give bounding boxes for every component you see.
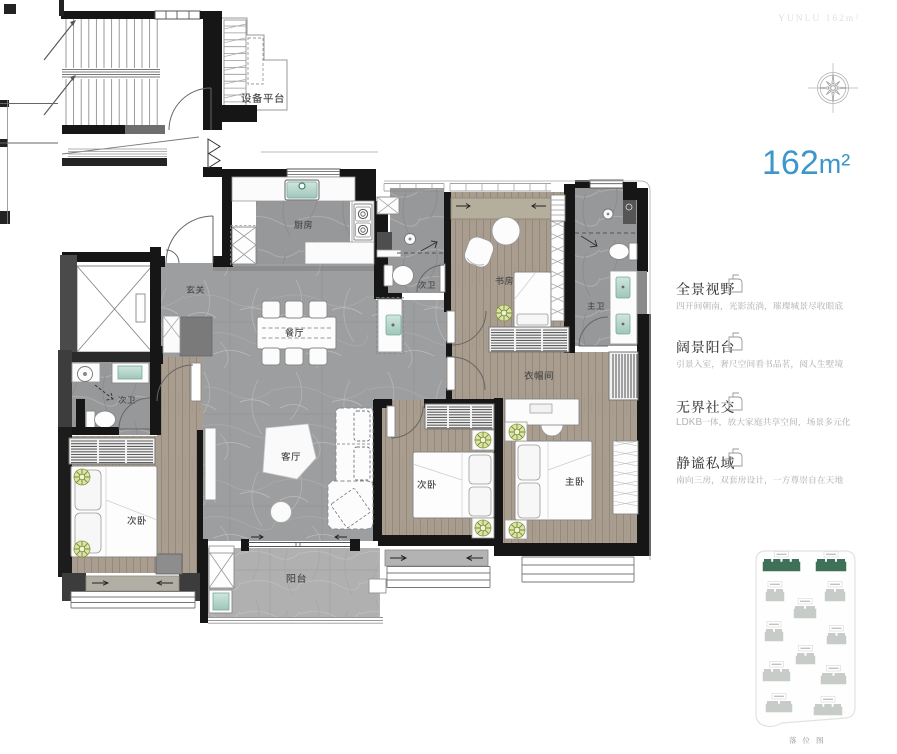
svg-text:162m²: 162m² xyxy=(762,144,850,182)
svg-text:YUNLU 162m²: YUNLU 162m² xyxy=(778,14,860,24)
svg-text:LDKB: LDKB xyxy=(676,417,702,428)
